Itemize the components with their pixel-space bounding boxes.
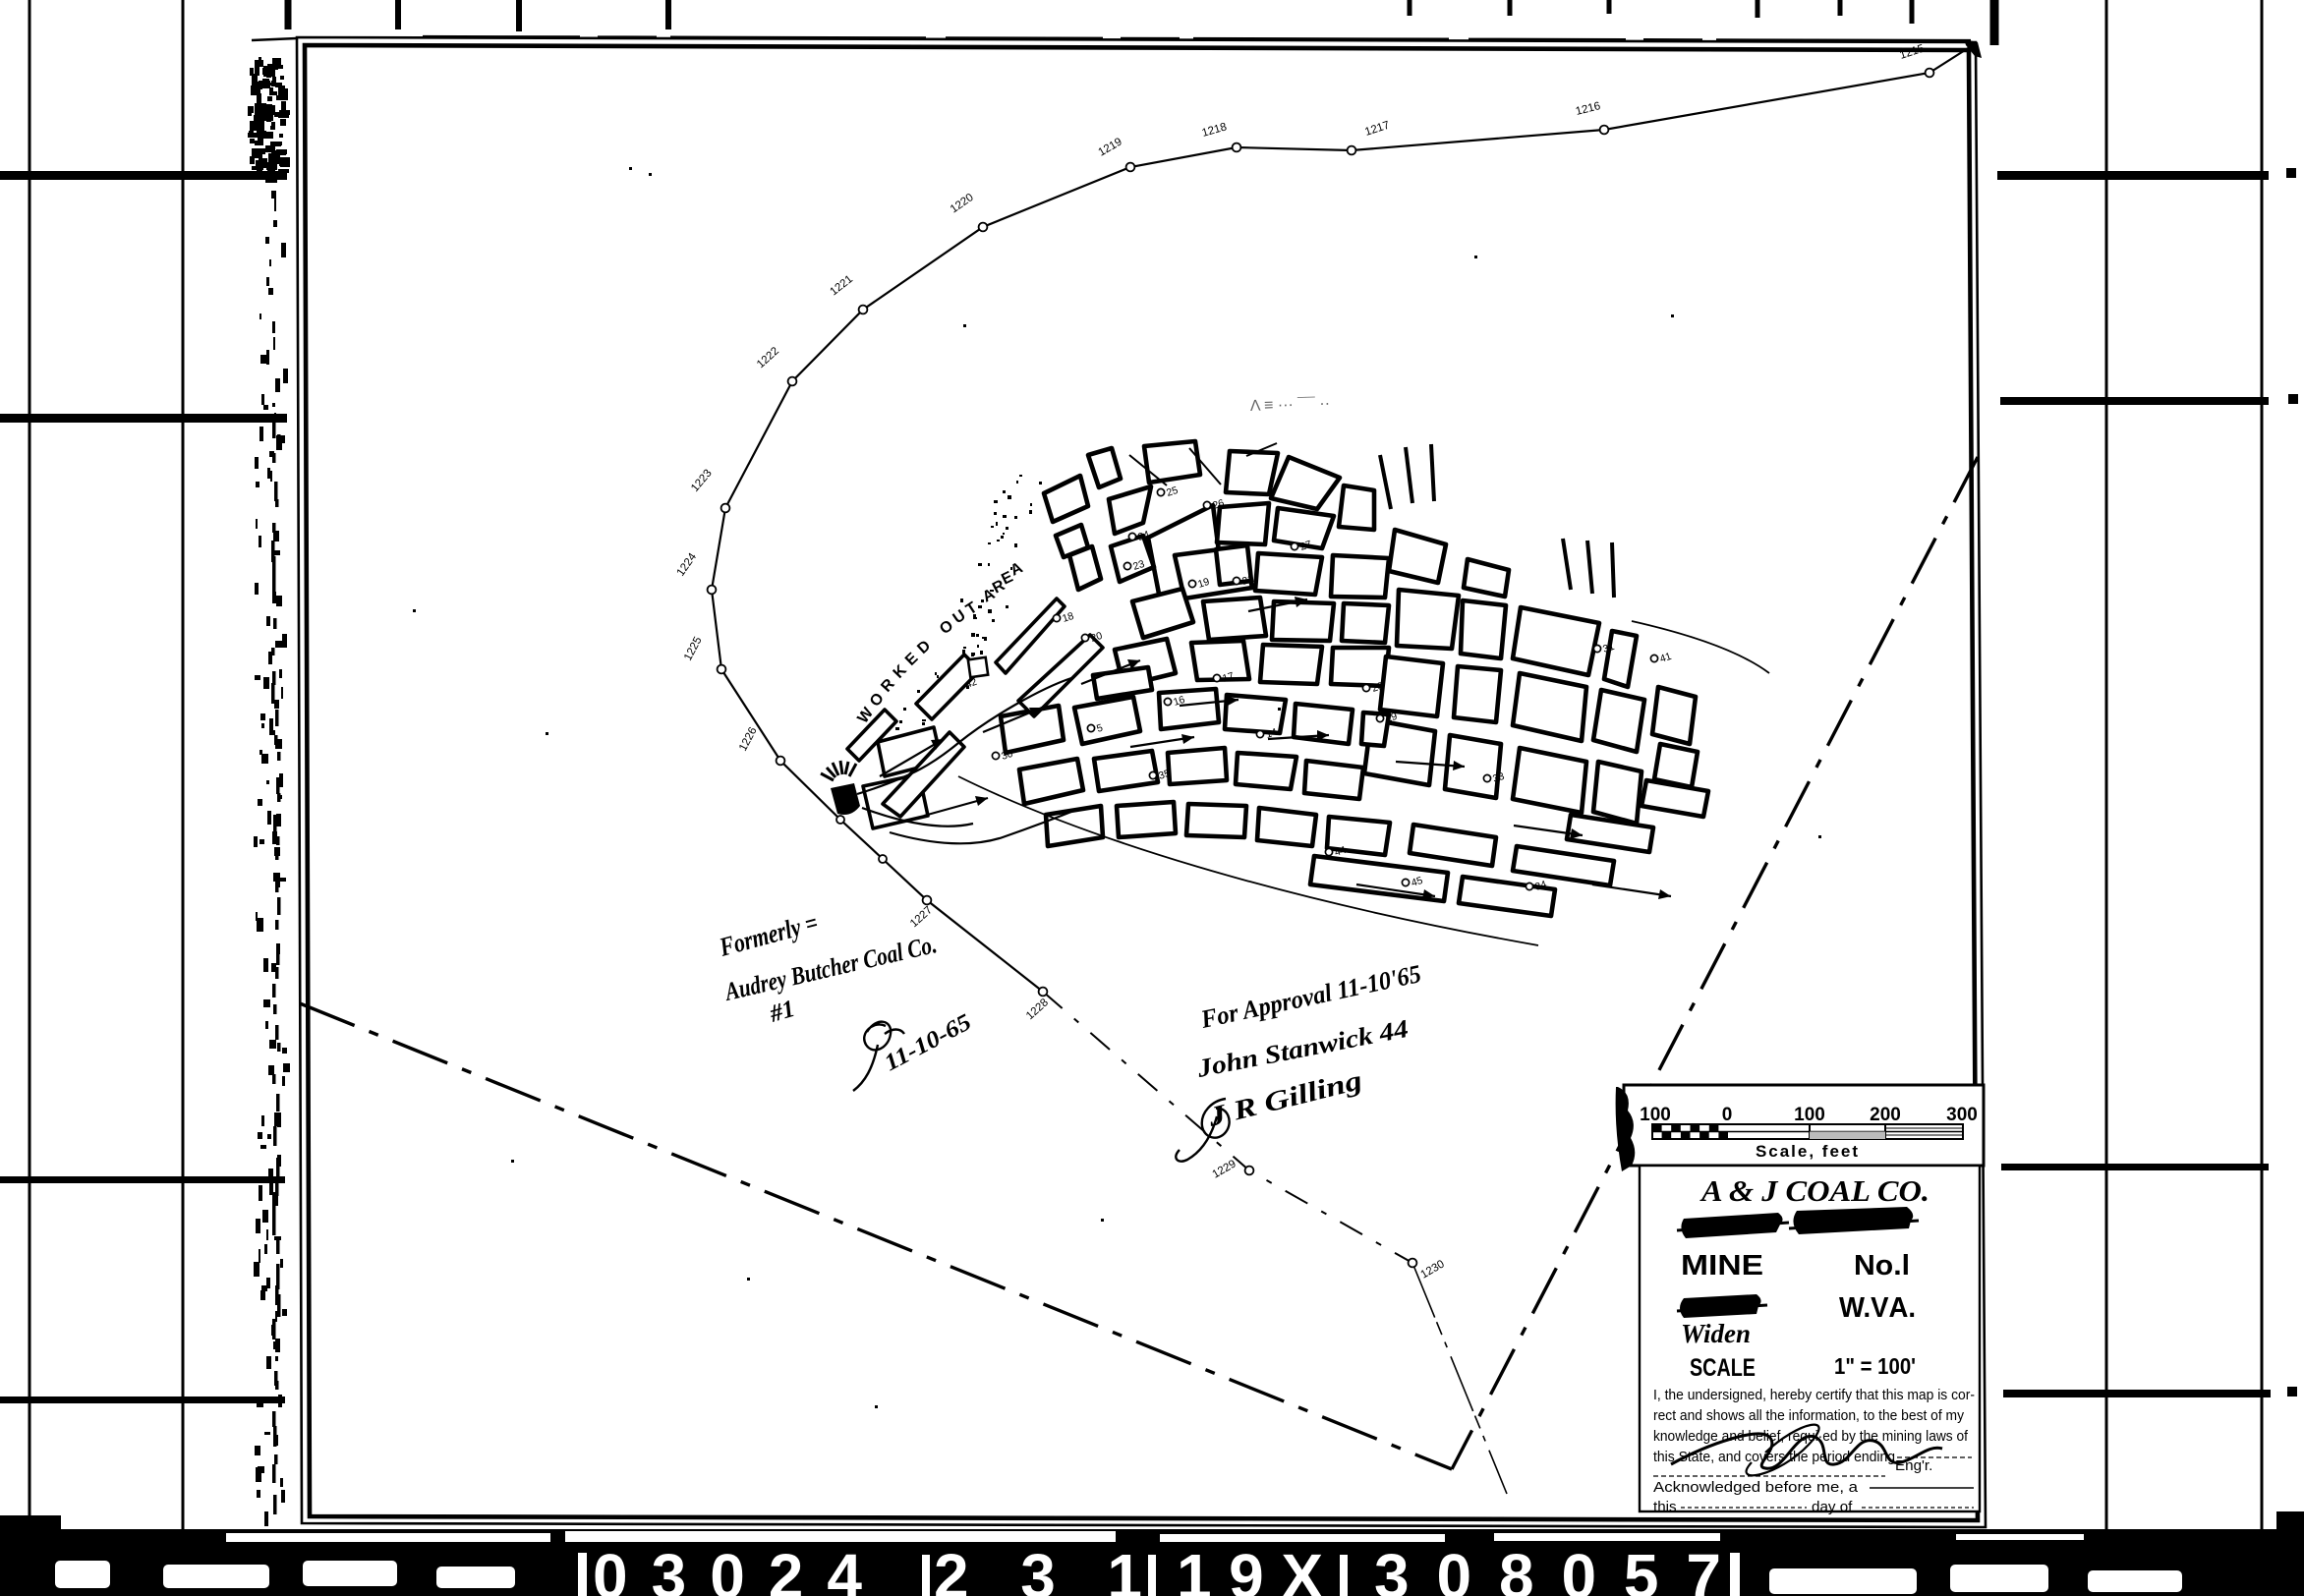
svg-text:rect and shows all the informa: rect and shows all the information, to t… [1653,1407,1964,1424]
svg-text:Eng'r.: Eng'r. [1895,1457,1932,1474]
svg-text:300: 300 [1946,1105,1978,1125]
svg-text:No.l: No.l [1854,1250,1910,1282]
svg-text:1" = 100': 1" = 100' [1834,1353,1916,1379]
svg-text:231: 231 [934,1541,1142,1596]
svg-text:this State, and covers the per: this State, and covers the period ending [1653,1449,1895,1465]
svg-text:0: 0 [1722,1105,1733,1125]
svg-text:Widen: Widen [1681,1319,1751,1348]
svg-text:200: 200 [1870,1105,1901,1125]
svg-text:100: 100 [1640,1105,1671,1125]
svg-text:MINE: MINE [1681,1250,1763,1282]
svg-text:this: this [1653,1499,1677,1515]
svg-text:day of: day of [1812,1499,1853,1515]
svg-text:Acknowledged before me, a: Acknowledged before me, a [1653,1479,1859,1496]
svg-text:19X: 19X [1177,1541,1323,1596]
svg-text:Scale, feet: Scale, feet [1756,1142,1860,1161]
svg-text:SCALE: SCALE [1690,1354,1756,1382]
svg-text:100: 100 [1794,1105,1825,1125]
svg-text:W.VА.: W.VА. [1839,1292,1916,1324]
svg-text:I, the undersigned, hereby cer: I, the undersigned, hereby certify that … [1653,1387,1975,1403]
svg-text:Λ ≡ ··· ¯¯ ··: Λ ≡ ··· ¯¯ ·· [1250,395,1331,415]
svg-text:A & J COAL CO.: A & J COAL CO. [1699,1173,1930,1208]
